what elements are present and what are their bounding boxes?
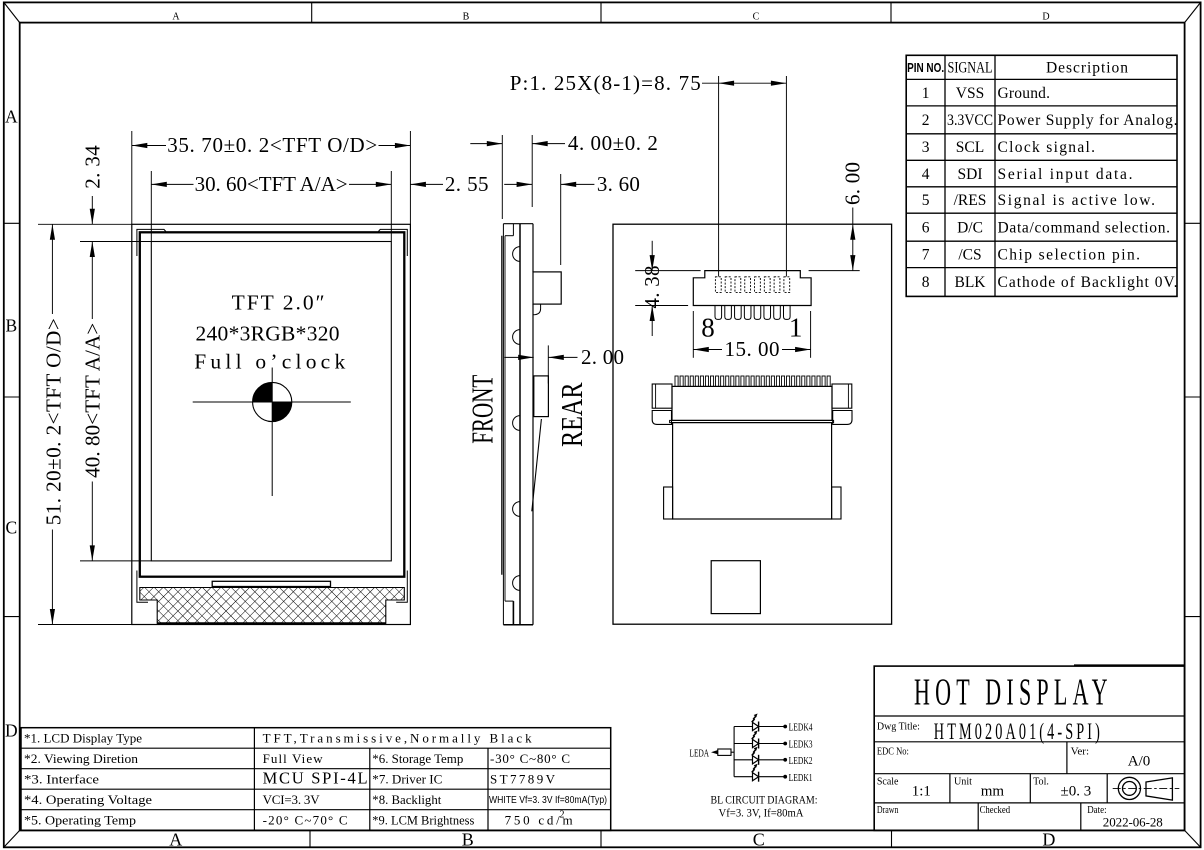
svg-text:Checked: Checked [980,804,1011,816]
svg-text:6. 00: 6. 00 [840,162,864,205]
svg-text:Ground.: Ground. [998,85,1051,102]
svg-text:BL CIRCUIT DIAGRAM:: BL CIRCUIT DIAGRAM: [711,792,818,806]
svg-text:LEDK2: LEDK2 [789,756,813,767]
svg-text:*4. Operating Voltage: *4. Operating Voltage [24,792,152,807]
svg-text:SCL: SCL [956,139,984,156]
svg-text:EDC No:: EDC No: [877,746,909,758]
svg-text:2: 2 [922,112,930,129]
svg-text:HTM020A01(4-SPI): HTM020A01(4-SPI) [934,720,1103,745]
svg-text:Drawn: Drawn [877,804,899,816]
svg-text:PIN NO.: PIN NO. [907,61,944,75]
svg-text:-20° C~70° C: -20° C~70° C [263,813,348,828]
svg-text:WHITE Vf=3. 3V If=80mA(Typ): WHITE Vf=3. 3V If=80mA(Typ) [489,794,607,806]
svg-text:D: D [5,720,18,740]
svg-text:3: 3 [922,139,930,156]
svg-text:15. 00: 15. 00 [725,337,780,361]
svg-text:A: A [5,106,18,126]
svg-text:Serial input data.: Serial input data. [998,166,1133,183]
svg-text:30. 60<TFT A/A>: 30. 60<TFT A/A> [195,172,348,196]
svg-text:D: D [1042,829,1055,849]
svg-text:2. 00: 2. 00 [581,345,624,369]
svg-text:VCI=3. 3V: VCI=3. 3V [263,792,321,807]
svg-text:Ver:: Ver: [1071,746,1090,758]
svg-text:Scale: Scale [877,776,899,788]
svg-text:*6. Storage Temp: *6. Storage Temp [372,751,463,766]
svg-text:1: 1 [922,85,930,102]
svg-text:LEDA: LEDA [690,749,710,760]
svg-text:P:1. 25X(8-1)=8. 75: P:1. 25X(8-1)=8. 75 [510,71,701,95]
svg-text:1:1: 1:1 [912,784,931,800]
svg-text:Vf=3. 3V, If=80mA: Vf=3. 3V, If=80mA [719,805,804,819]
svg-text:A: A [169,829,182,849]
svg-text:BLK: BLK [955,274,987,291]
svg-text:51. 20±0. 2<TFT O/D>: 51. 20±0. 2<TFT O/D> [41,318,65,525]
svg-text:7: 7 [922,247,930,264]
svg-text:B: B [5,316,17,336]
svg-text:FRONT: FRONT [465,375,500,444]
svg-text:2022-06-28: 2022-06-28 [1103,814,1163,829]
svg-text:D: D [1042,12,1049,23]
svg-text:Tol.: Tol. [1033,776,1049,788]
svg-text:8: 8 [922,274,930,291]
svg-text:A: A [172,12,180,23]
svg-text:VSS: VSS [956,85,984,102]
svg-text:4. 38: 4. 38 [640,266,664,309]
svg-text:Data/command selection.: Data/command selection. [998,219,1171,236]
svg-text:*8. Backlight: *8. Backlight [372,792,441,807]
svg-text:3.3VCC: 3.3VCC [947,112,993,129]
svg-text:4: 4 [922,166,930,183]
svg-text:B: B [463,12,470,23]
svg-text:C: C [5,518,17,538]
svg-text:40. 80<TFT A/A>: 40. 80<TFT A/A> [80,323,104,478]
svg-text:C: C [753,12,760,23]
svg-text:*2. Viewing Diretion: *2. Viewing Diretion [24,751,139,766]
svg-text:*3. Interface: *3. Interface [24,772,99,787]
svg-text:C: C [753,829,765,849]
svg-text:B: B [462,829,474,849]
svg-text:mm: mm [981,784,1005,800]
svg-text:Unit: Unit [954,776,972,788]
svg-text:/CS: /CS [958,247,981,264]
svg-text:240*3RGB*320: 240*3RGB*320 [196,322,340,346]
svg-text:Clock signal.: Clock signal. [998,139,1096,156]
svg-text:Dwg Title:: Dwg Title: [877,721,920,733]
svg-text:LEDK3: LEDK3 [789,740,813,751]
svg-text:2: 2 [560,810,565,821]
svg-text:3. 60: 3. 60 [597,172,640,196]
svg-text:SDI: SDI [958,166,983,183]
svg-text:*1. LCD Display Type: *1. LCD Display Type [24,731,142,746]
svg-text:ST7789V: ST7789V [490,772,556,787]
svg-text:LEDK1: LEDK1 [789,773,813,784]
svg-text:D/C: D/C [957,219,983,236]
svg-text:Chip selection pin.: Chip selection pin. [998,247,1141,264]
svg-text:1: 1 [789,313,803,343]
svg-text:Cathode of Backlight 0V.: Cathode of Backlight 0V. [998,274,1178,291]
svg-text:-30° C~80° C: -30° C~80° C [490,751,570,766]
svg-text:A/0: A/0 [1128,753,1151,769]
svg-text:SIGNAL: SIGNAL [948,60,993,77]
svg-text:6: 6 [922,219,930,236]
svg-text:MCU SPI-4L: MCU SPI-4L [263,769,368,788]
svg-text:Full o’clock: Full o’clock [194,350,345,374]
svg-text:2. 55: 2. 55 [445,172,489,196]
svg-text:35. 70±0. 2<TFT O/D>: 35. 70±0. 2<TFT O/D> [167,133,377,157]
svg-text:Full View: Full View [263,751,324,766]
svg-text:5: 5 [922,192,930,209]
svg-text:LEDK4: LEDK4 [789,723,814,734]
svg-text:*9. LCM Brightness: *9. LCM Brightness [372,813,474,828]
svg-text:Signal is active low.: Signal is active low. [998,192,1156,209]
svg-text:8: 8 [701,313,715,343]
svg-text:TFT 2.0″: TFT 2.0″ [232,291,325,315]
svg-text:Power Supply for Analog.: Power Supply for Analog. [998,112,1178,129]
svg-text:2. 34: 2. 34 [80,145,104,189]
svg-text:/RES: /RES [954,192,987,209]
svg-text:REAR: REAR [554,382,589,447]
svg-text:HOT DISPLAY: HOT DISPLAY [914,670,1113,713]
svg-text:±0. 3: ±0. 3 [1061,784,1092,800]
svg-text:Description: Description [1046,60,1128,77]
svg-text:*7. Driver IC: *7. Driver IC [372,772,442,787]
svg-text:4. 00±0. 2: 4. 00±0. 2 [568,131,658,155]
svg-text:TFT,Transmissive,Normally Blac: TFT,Transmissive,Normally Black [263,731,532,746]
svg-text:*5. Operating Temp: *5. Operating Temp [24,813,136,828]
